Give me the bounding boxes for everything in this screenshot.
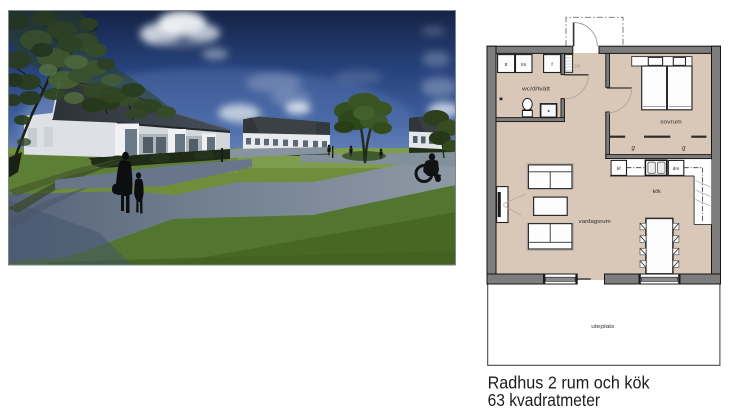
svg-text:63 kvadratmeter: 63 kvadratmeter [488,390,601,410]
svg-text:uteplats: uteplats [591,324,614,330]
svg-text:wc/d/tvätt: wc/d/tvätt [522,87,551,93]
svg-text:sovrum: sovrum [660,119,682,125]
svg-text:vardagsrum: vardagsrum [579,219,612,225]
svg-text:kök: kök [653,189,662,195]
svg-text:dm: dm [673,166,680,172]
svg-text:tm: tm [521,62,526,68]
svg-text:kf: kf [617,166,621,172]
